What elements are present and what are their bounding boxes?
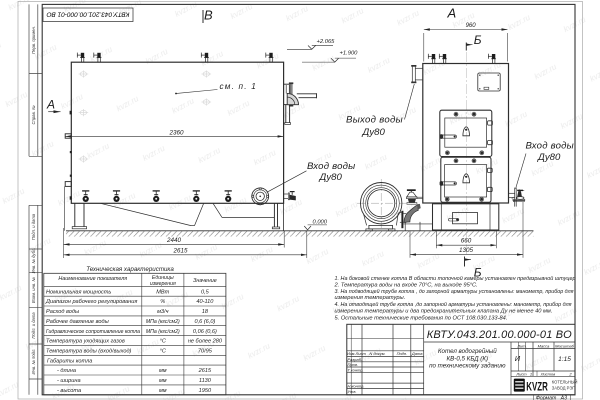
svg-text:мм: мм xyxy=(159,368,167,374)
svg-text:40-110: 40-110 xyxy=(196,299,214,305)
svg-text:Лист: Лист xyxy=(515,372,527,377)
svg-text:0,06 (0,6): 0,06 (0,6) xyxy=(193,329,217,335)
svg-text:Гидравлическое сопротивление к: Гидравлическое сопротивление котла xyxy=(46,329,140,335)
svg-text:70/95: 70/95 xyxy=(198,349,213,355)
svg-text:Вход воды: Вход воды xyxy=(307,161,355,172)
svg-text:КОТЕЛЬНЫЙ: КОТЕЛЬНЫЙ xyxy=(552,380,578,385)
svg-text:Значение: Значение xyxy=(193,278,217,284)
svg-text:Выход воды: Выход воды xyxy=(346,114,403,125)
svg-text:МВт: МВт xyxy=(156,289,169,295)
svg-text:18: 18 xyxy=(202,309,209,315)
svg-text:Подп. и дата: Подп. и дата xyxy=(31,213,36,240)
svg-text:660: 660 xyxy=(461,238,472,245)
svg-text:А: А xyxy=(447,6,457,21)
svg-text:Подп. и дата: Подп. и дата xyxy=(31,312,36,339)
svg-text:МПа (кгс/см2): МПа (кгс/см2) xyxy=(146,329,180,335)
svg-text:2440: 2440 xyxy=(166,237,182,244)
svg-text:Наименование показателя: Наименование показателя xyxy=(58,276,127,282)
svg-text:N докум.: N докум. xyxy=(369,351,385,356)
svg-text:Ду80: Ду80 xyxy=(319,172,343,183)
svg-text:- высота: - высота xyxy=(57,388,81,394)
svg-text:1. На боковой стенке котла В: 1. На боковой стенке котла В области топ… xyxy=(335,275,576,282)
svg-text:мм: мм xyxy=(159,378,167,384)
svg-text:не более 280: не более 280 xyxy=(188,339,223,345)
svg-text:КВТУ.043.201.00.000-01 ВО: КВТУ.043.201.00.000-01 ВО xyxy=(427,329,572,341)
svg-text:Разраб.: Разраб. xyxy=(348,357,362,362)
svg-text:°С: °С xyxy=(160,349,167,355)
svg-text:ЗАВОД РЭП: ЗАВОД РЭП xyxy=(552,385,575,390)
svg-text:1950: 1950 xyxy=(199,388,212,394)
svg-text:измерения: измерения xyxy=(150,281,176,287)
svg-text:Рабочее давление воды: Рабочее давление воды xyxy=(46,319,109,325)
svg-text:960: 960 xyxy=(466,23,477,29)
svg-text:1130: 1130 xyxy=(199,378,212,384)
svg-text:Инв. № дубл.: Инв. № дубл. xyxy=(31,248,36,274)
svg-text:%: % xyxy=(160,299,165,305)
svg-text:Справ. №: Справ. № xyxy=(31,105,36,124)
svg-text:+1.900: +1.900 xyxy=(340,51,359,57)
svg-text:Дата: Дата xyxy=(411,351,423,356)
svg-text:В: В xyxy=(204,8,213,23)
svg-text:Взам. инв. №: Взам. инв. № xyxy=(31,277,36,303)
svg-text:Масштаб: Масштаб xyxy=(555,343,574,348)
svg-text:КВ-0,5 КБД (К): КВ-0,5 КБД (К) xyxy=(447,355,489,362)
svg-text:Лит.: Лит. xyxy=(516,343,526,348)
svg-text:5. Остальные технические треб: 5. Остальные технические требования по О… xyxy=(335,316,508,322)
svg-text:Н.контр.: Н.контр. xyxy=(348,384,365,389)
svg-text:KVZR: KVZR xyxy=(526,379,548,393)
svg-text:Подп.: Подп. xyxy=(397,351,408,356)
svg-text:+2.065: +2.065 xyxy=(317,39,336,45)
svg-text:Утв.: Утв. xyxy=(348,389,357,394)
svg-text:Диапазон рабочего регулировани: Диапазон рабочего регулирования xyxy=(45,299,137,305)
svg-text:Масса: Масса xyxy=(538,343,551,348)
svg-text:Перв. примен.: Перв. примен. xyxy=(31,26,36,54)
svg-text:Ду80: Ду80 xyxy=(537,152,561,163)
svg-text:2. Температура воды на входе: 2. Температура воды на входе 70°С, на вы… xyxy=(334,283,478,289)
svg-text:А: А xyxy=(46,98,55,112)
svg-text:1:15: 1:15 xyxy=(558,356,571,363)
svg-text:Температура уходящих газов: Температура уходящих газов xyxy=(46,339,125,345)
svg-text:0.000: 0.000 xyxy=(313,219,328,225)
svg-text:Пров.: Пров. xyxy=(348,362,359,367)
svg-text:м3/ч: м3/ч xyxy=(157,309,168,315)
svg-text:1: 1 xyxy=(530,372,532,377)
svg-text:А3: А3 xyxy=(560,395,567,400)
svg-text:2615: 2615 xyxy=(172,247,188,254)
svg-text:Котел водогрейный: Котел водогрейный xyxy=(438,348,497,355)
svg-text:Вход воды: Вход воды xyxy=(526,141,574,152)
svg-text:КВТУ.043.201.00.000-01 ВО: КВТУ.043.201.00.000-01 ВО xyxy=(46,10,130,17)
svg-text:0,6 (6,0): 0,6 (6,0) xyxy=(194,319,215,325)
svg-text:Номинальная мощность: Номинальная мощность xyxy=(46,289,111,295)
svg-text:измерения температуры.: измерения температуры. xyxy=(335,295,406,301)
svg-text:3. На подводящей трубе котла: 3. На подводящей трубе котла , до запорн… xyxy=(335,288,574,295)
svg-text:Техническая характеристика: Техническая характеристика xyxy=(86,266,174,273)
svg-text:МПа (кгс/см2): МПа (кгс/см2) xyxy=(146,319,180,325)
svg-text:Т.контр.: Т.контр. xyxy=(348,367,364,372)
svg-text:0,5: 0,5 xyxy=(201,289,210,295)
svg-text:Габариты котла: Габариты котла xyxy=(47,358,92,364)
svg-text:2615: 2615 xyxy=(198,368,212,374)
svg-text:2360: 2360 xyxy=(168,129,184,136)
svg-text:4. На отводящей трубе котла ,: 4. На отводящей трубе котла ,до запорной… xyxy=(335,301,572,308)
svg-text:Листов: Листов xyxy=(540,372,556,377)
svg-text:Б: Б xyxy=(474,33,482,47)
svg-text:мм: мм xyxy=(159,388,167,394)
svg-text:- длина: - длина xyxy=(57,368,76,374)
svg-text:- ширина: - ширина xyxy=(57,378,81,384)
svg-text:Температура воды (вход/выход): Температура воды (вход/выход) xyxy=(46,349,132,355)
svg-text:1305: 1305 xyxy=(459,247,474,254)
svg-text:Инв. № подл.: Инв. № подл. xyxy=(31,349,36,375)
svg-text:Расход воды: Расход воды xyxy=(46,309,79,315)
svg-text:Изм.Лист: Изм.Лист xyxy=(347,351,366,356)
svg-text:измерения температуры и два пр: измерения температуры и два предохраните… xyxy=(335,309,553,315)
svg-text:°С: °С xyxy=(160,339,167,345)
svg-text:Ду80: Ду80 xyxy=(362,127,386,138)
svg-text:см. п. 1: см. п. 1 xyxy=(220,82,257,91)
svg-text:по техническому заданию: по техническому заданию xyxy=(429,363,506,370)
svg-text:И: И xyxy=(515,354,521,363)
svg-text:Формат: Формат xyxy=(536,395,557,400)
